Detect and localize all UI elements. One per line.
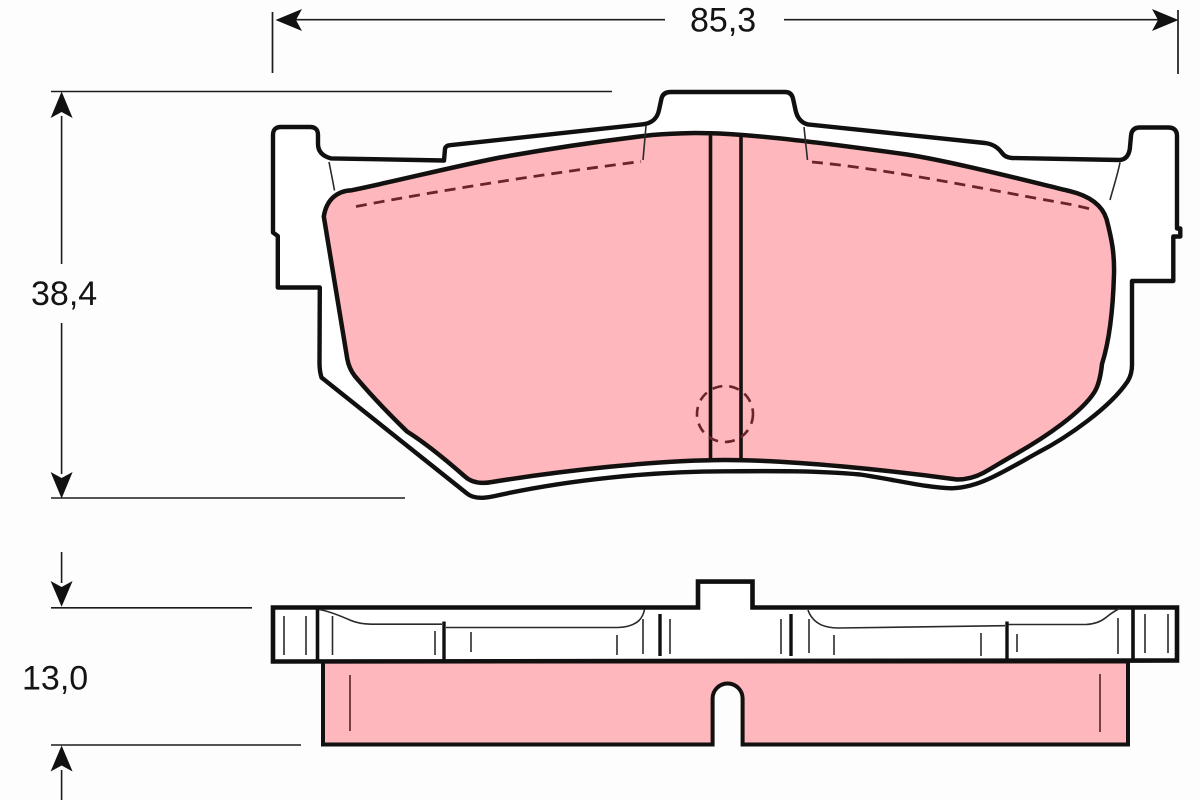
svg-text:38,4: 38,4 (31, 275, 97, 313)
svg-text:85,3: 85,3 (690, 2, 756, 40)
svg-text:13,0: 13,0 (22, 660, 88, 698)
